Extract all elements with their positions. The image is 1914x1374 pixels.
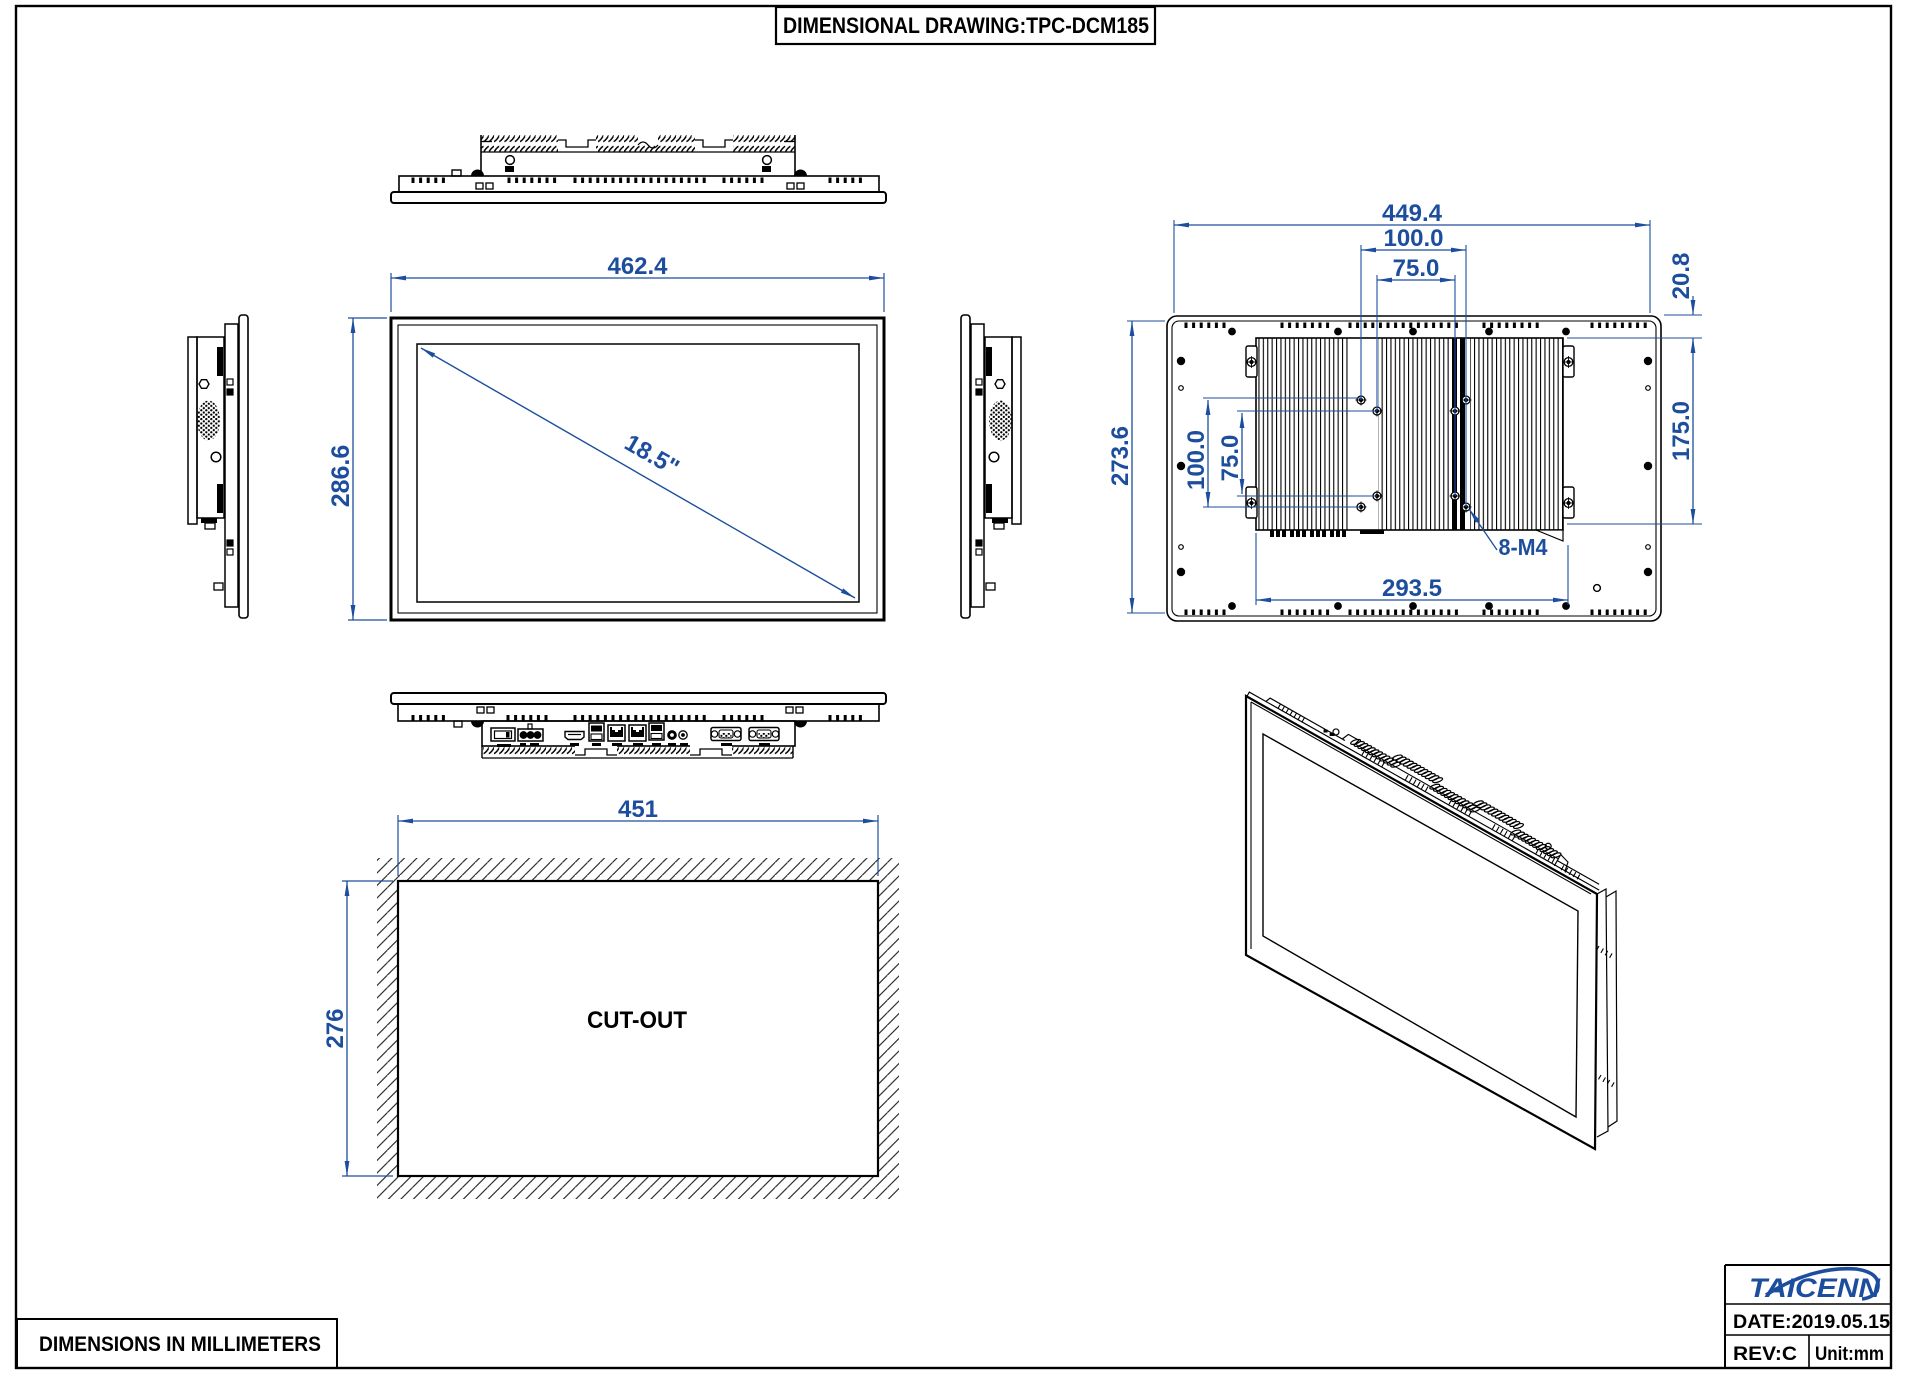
svg-text:100.0: 100.0 bbox=[1383, 225, 1443, 252]
svg-text:DIMENSIONS IN MILLIMETERS: DIMENSIONS IN MILLIMETERS bbox=[39, 1332, 321, 1356]
svg-text:462.4: 462.4 bbox=[607, 253, 668, 280]
svg-text:449.4: 449.4 bbox=[1382, 200, 1443, 227]
svg-text:DIMENSIONAL DRAWING:TPC-DCM185: DIMENSIONAL DRAWING:TPC-DCM185 bbox=[783, 13, 1149, 38]
svg-text:276: 276 bbox=[322, 1008, 349, 1048]
svg-text:273.6: 273.6 bbox=[1107, 426, 1134, 486]
svg-text:100.0: 100.0 bbox=[1183, 430, 1210, 490]
svg-text:TAICENN: TAICENN bbox=[1749, 1273, 1881, 1303]
svg-text:DATE:2019.05.15: DATE:2019.05.15 bbox=[1733, 1312, 1890, 1333]
svg-text:CUT-OUT: CUT-OUT bbox=[587, 1007, 687, 1034]
svg-text:451: 451 bbox=[618, 796, 658, 823]
svg-text:175.0: 175.0 bbox=[1668, 401, 1695, 461]
svg-text:20.8: 20.8 bbox=[1668, 253, 1695, 300]
svg-text:8-M4: 8-M4 bbox=[1499, 534, 1548, 560]
svg-text:Unit:mm: Unit:mm bbox=[1815, 1344, 1884, 1365]
svg-text:286.6: 286.6 bbox=[327, 445, 355, 508]
svg-text:293.5: 293.5 bbox=[1382, 575, 1442, 602]
svg-text:75.0: 75.0 bbox=[1393, 255, 1440, 282]
svg-text:REV:C: REV:C bbox=[1733, 1344, 1797, 1365]
svg-text:75.0: 75.0 bbox=[1217, 435, 1244, 482]
